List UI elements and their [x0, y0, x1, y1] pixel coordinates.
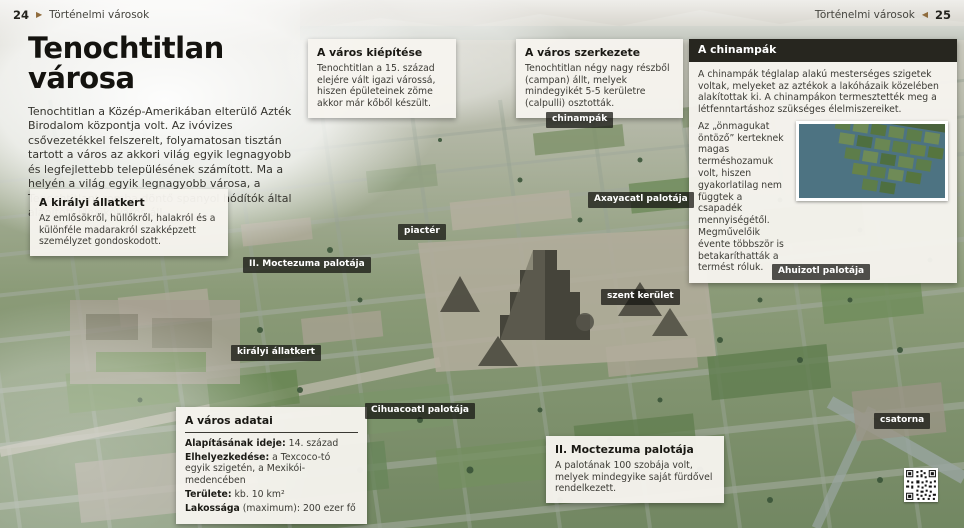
map-label-piacter: piactér	[398, 224, 446, 240]
divider	[185, 432, 358, 433]
map-label-cihuacoatl-palotaja: Cihuacoatl palotája	[365, 403, 475, 419]
page-header-left: 24 ▶ Történelmi városok	[13, 8, 149, 22]
infobox-chinampak: A chinampák A chinampák téglalap alakú m…	[689, 39, 957, 283]
data-row: Lakossága (maximum): 200 ezer fő	[185, 503, 358, 515]
book-spread: 24 ▶ Történelmi városok Történelmi város…	[0, 0, 964, 528]
infobox-body: A chinampák téglalap alakú mesterséges s…	[698, 69, 948, 116]
map-label-moctezuma-palotaja: II. Moctezuma palotája	[243, 257, 371, 273]
page-header-right: Történelmi városok ◀ 25	[815, 8, 951, 22]
data-row: Alapításának ideje: 14. század	[185, 438, 358, 450]
infobox-varos-adatai: A város adatai Alapításának ideje: 14. s…	[176, 407, 367, 524]
data-value: 14. század	[289, 438, 339, 449]
qr-code	[904, 468, 938, 502]
page-title: Tenochtitlan városa	[28, 33, 300, 94]
infobox-body: Tenochtitlan négy nagy részből (campan) …	[525, 63, 674, 110]
page-number: 25	[935, 8, 951, 22]
page-number: 24	[13, 8, 29, 22]
data-label: Elhelyezkedése:	[185, 452, 269, 463]
infobox-title: A város szerkezete	[525, 46, 674, 60]
infobox-body: Az emlősökről, hüllőkről, halakról és a …	[39, 213, 219, 248]
section-title: Történelmi városok	[49, 9, 149, 21]
data-label: Területe:	[185, 489, 232, 500]
map-label-kiralyi-allatkert: királyi állatkert	[231, 345, 321, 361]
infobox-kiralyi-allatkert: A királyi állatkert Az emlősökről, hüllő…	[30, 189, 228, 256]
page-arrow-icon: ▶	[36, 11, 42, 19]
section-title: Történelmi városok	[815, 9, 915, 21]
infobox-body: A palotának 100 szobája volt, melyek min…	[555, 460, 715, 495]
map-label-chinampak: chinampák	[546, 112, 613, 128]
data-label: Lakossága	[185, 503, 240, 514]
data-value: kb. 10 km²	[235, 489, 285, 500]
chinampa-inset-image	[796, 121, 948, 201]
data-label: Alapításának ideje:	[185, 438, 286, 449]
infobox-body: Az „önmagukat öntöző” kerteknek magas te…	[698, 121, 796, 274]
data-value: (maximum): 200 ezer fő	[243, 503, 356, 514]
infobox-title: II. Moctezuma palotája	[555, 443, 715, 457]
map-label-szent-kerulet: szent kerület	[601, 289, 680, 305]
infobox-moctezuma-palota: II. Moctezuma palotája A palotának 100 s…	[546, 436, 724, 503]
infobox-varos-szerkezete: A város szerkezete Tenochtitlan négy nag…	[516, 39, 683, 118]
infobox-title: A királyi állatkert	[39, 196, 219, 210]
infobox-varos-kiepitese: A város kiépítése Tenochtitlan a 15. szá…	[308, 39, 456, 118]
map-label-ahuizotl-palotaja: Ahuizotl palotája	[772, 264, 870, 280]
infobox-body: Tenochtitlan a 15. század elejére vált i…	[317, 63, 447, 110]
map-label-csatorna: csatorna	[874, 413, 930, 429]
page-arrow-icon: ◀	[922, 11, 928, 19]
map-label-axayacatl-palotaja: Axayacatl palotája	[588, 192, 694, 208]
infobox-dark-header: A chinampák	[689, 39, 957, 62]
infobox-title: A város adatai	[185, 414, 358, 428]
infobox-title: A város kiépítése	[317, 46, 447, 60]
data-row: Területe: kb. 10 km²	[185, 489, 358, 501]
data-row: Elhelyezkedése: a Texcoco-tó egyik szige…	[185, 452, 358, 487]
